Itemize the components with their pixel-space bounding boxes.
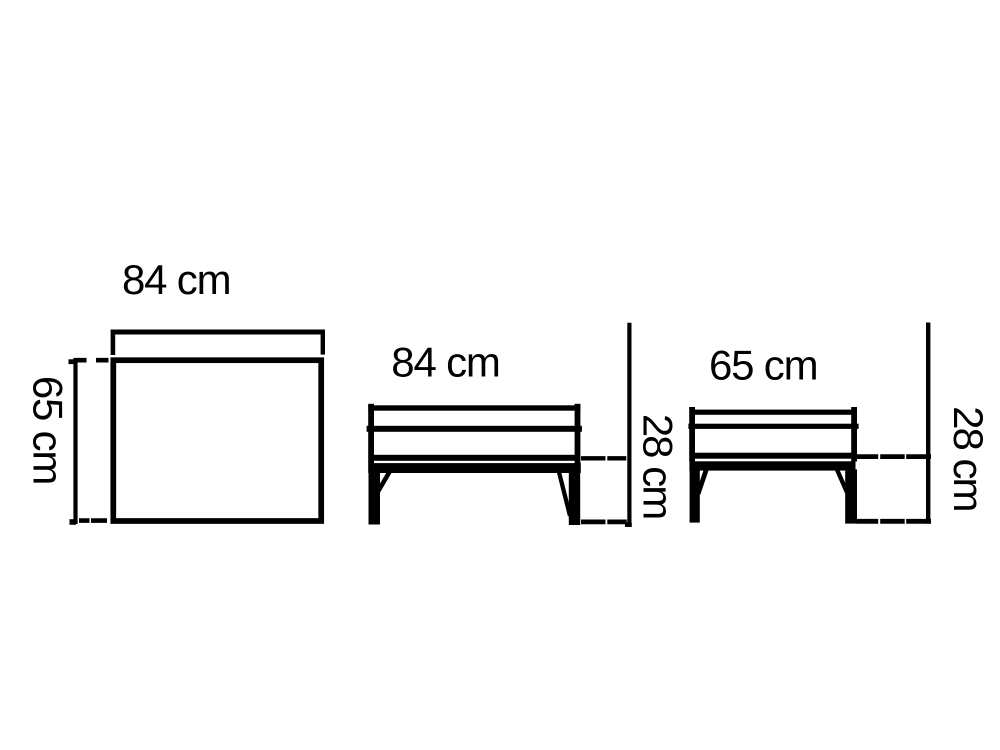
svg-text:84 cm: 84 cm [391, 338, 499, 385]
svg-text:28 cm: 28 cm [945, 406, 992, 510]
svg-text:84 cm: 84 cm [122, 256, 230, 303]
svg-text:65 cm: 65 cm [709, 341, 817, 388]
svg-text:28 cm: 28 cm [635, 414, 682, 518]
svg-text:65 cm: 65 cm [25, 376, 72, 484]
